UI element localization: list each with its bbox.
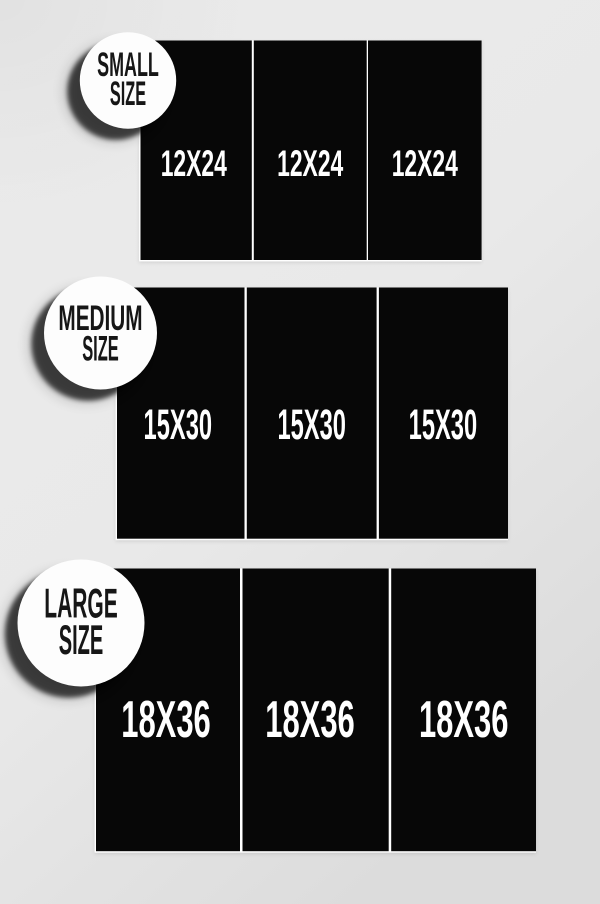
svg-text:15X30: 15X30 <box>277 401 346 448</box>
svg-text:15X30: 15X30 <box>144 401 213 448</box>
svg-text:18X36: 18X36 <box>419 690 509 748</box>
svg-text:SIZE: SIZE <box>59 617 104 663</box>
svg-text:15X30: 15X30 <box>409 401 478 448</box>
svg-text:18X36: 18X36 <box>121 690 211 748</box>
svg-text:12X24: 12X24 <box>277 142 343 184</box>
svg-text:12X24: 12X24 <box>161 142 227 184</box>
svg-text:SIZE: SIZE <box>82 330 119 369</box>
svg-text:18X36: 18X36 <box>265 690 355 748</box>
svg-text:12X24: 12X24 <box>392 142 458 184</box>
svg-text:SIZE: SIZE <box>110 75 146 113</box>
